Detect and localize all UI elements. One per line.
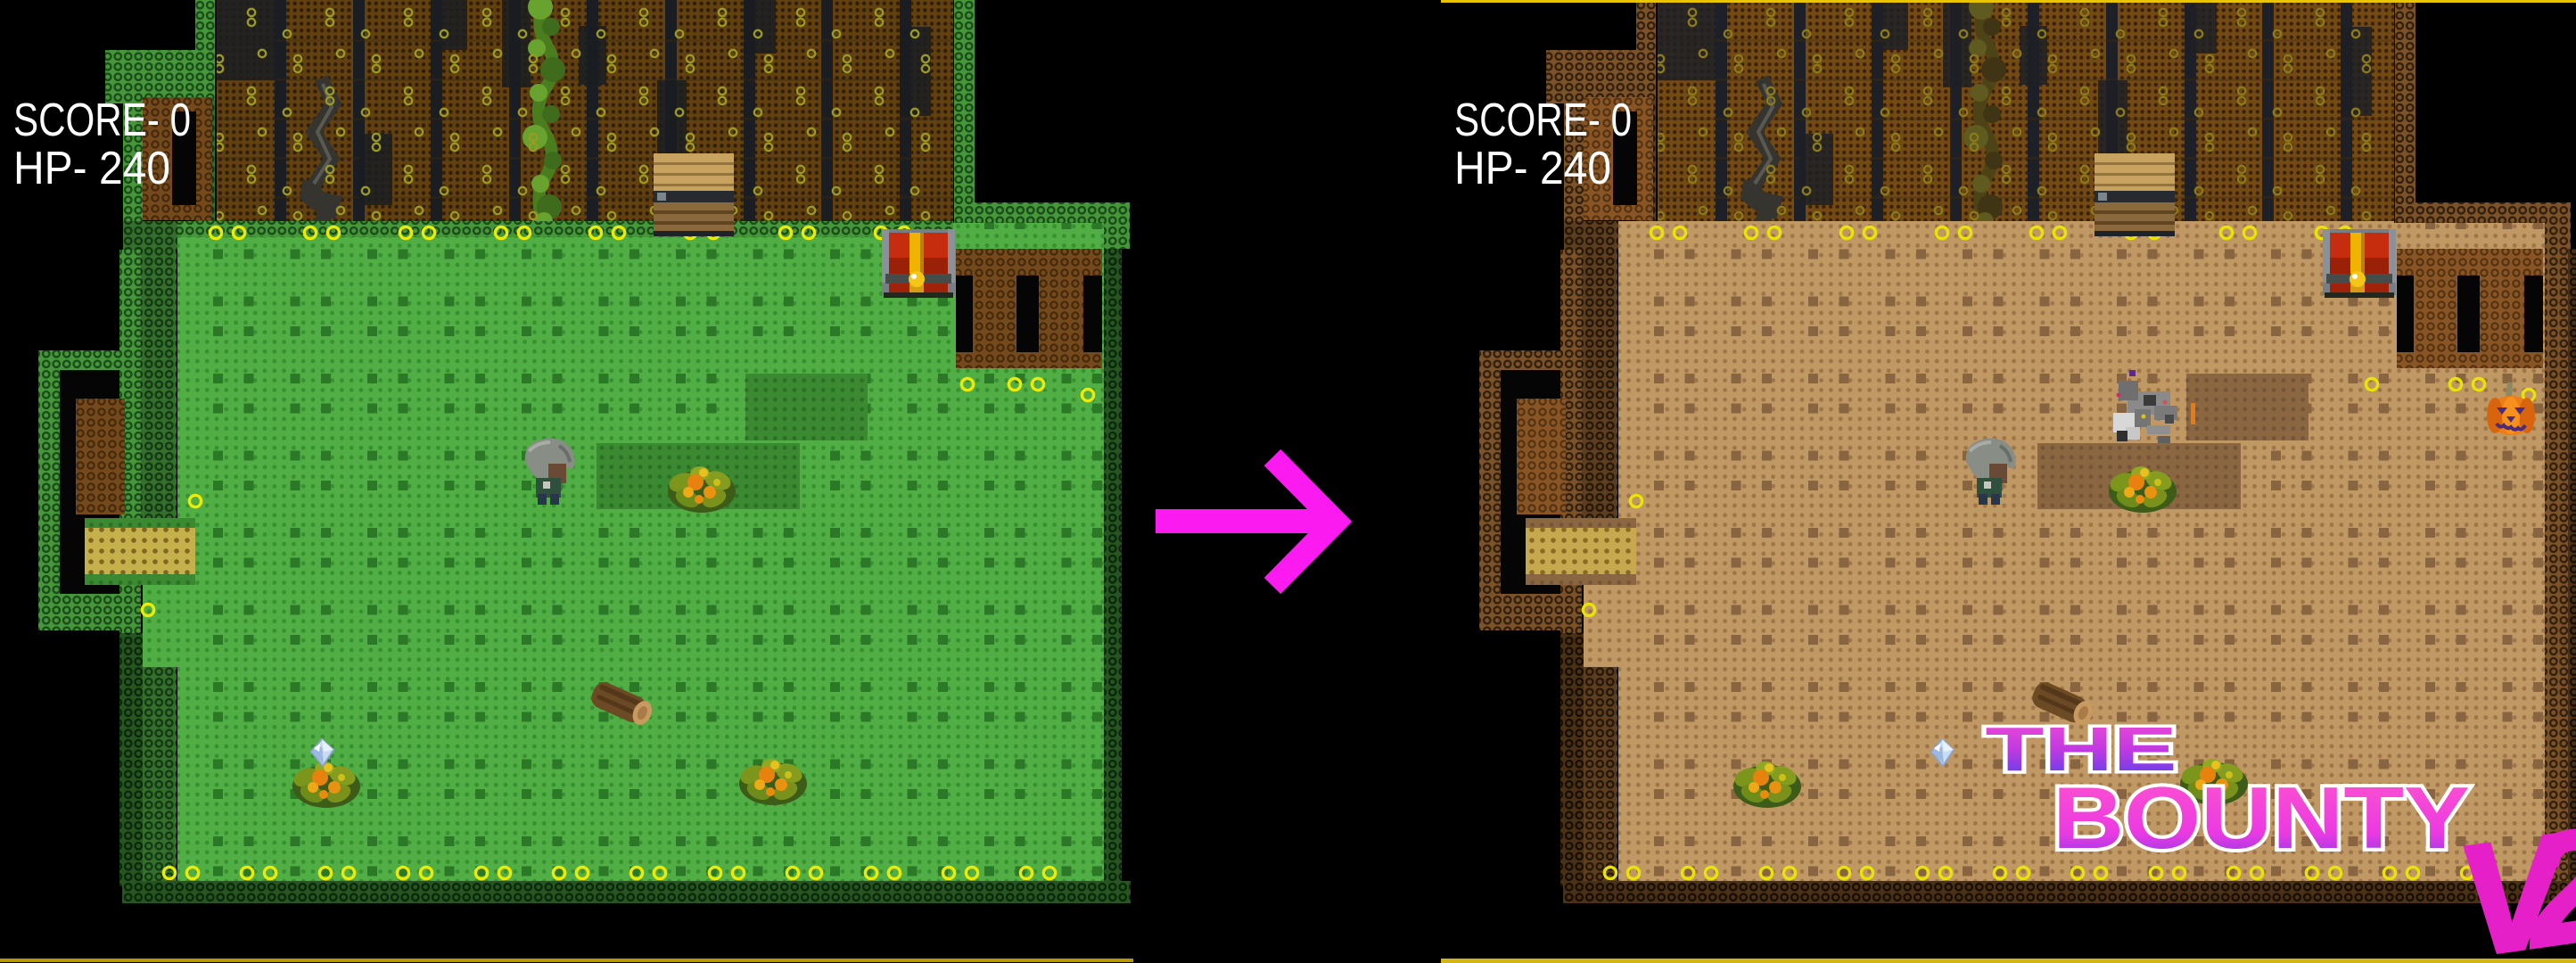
svg-text:BOUNTY: BOUNTY bbox=[2053, 769, 2470, 867]
svg-text:SCORE- 0: SCORE- 0 bbox=[13, 95, 191, 146]
svg-text:SCORE- 0: SCORE- 0 bbox=[1454, 95, 1632, 146]
svg-text:HP- 240: HP- 240 bbox=[13, 143, 170, 194]
svg-text:HP- 240: HP- 240 bbox=[1454, 143, 1611, 194]
svg-text:V2: V2 bbox=[2448, 796, 2576, 963]
